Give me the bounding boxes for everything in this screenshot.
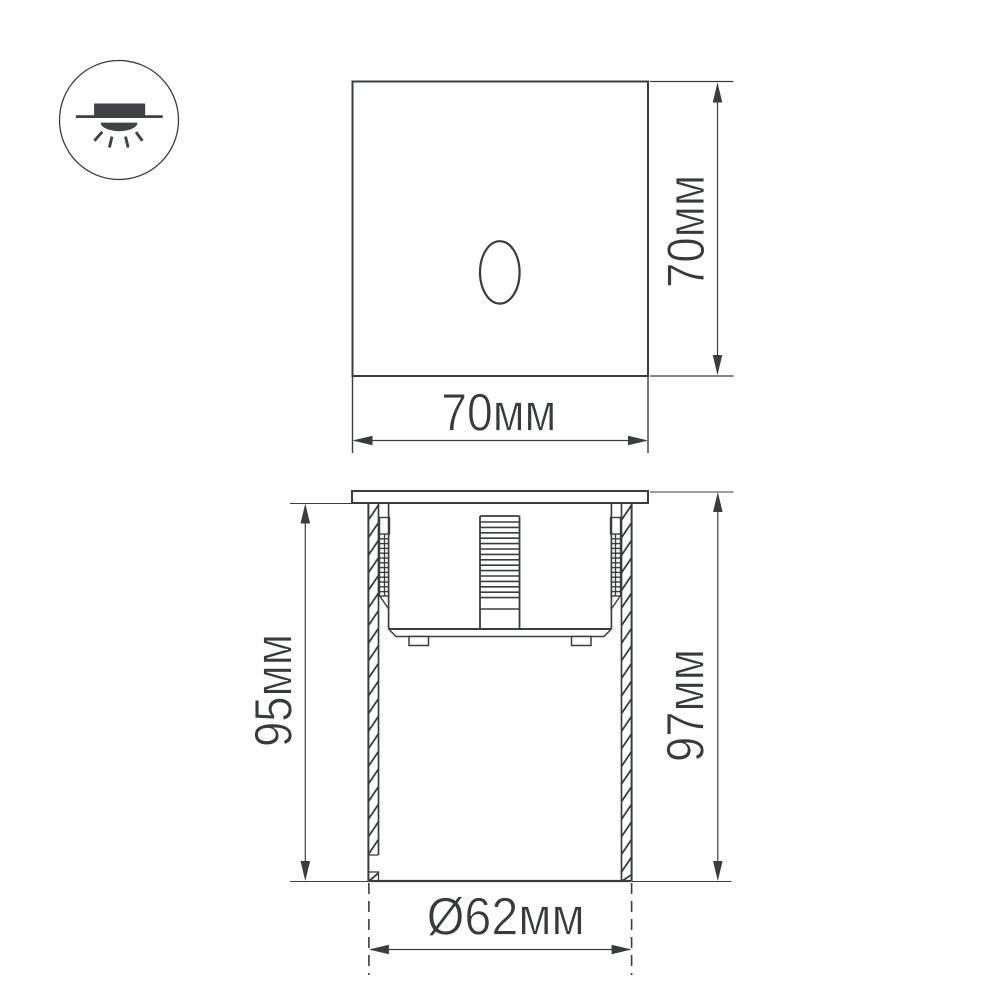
- svg-text:Ø62мм: Ø62мм: [427, 888, 585, 947]
- svg-text:97мм: 97мм: [657, 649, 716, 762]
- svg-text:70мм: 70мм: [657, 175, 716, 288]
- svg-text:70мм: 70мм: [441, 383, 556, 442]
- svg-text:95мм: 95мм: [245, 634, 304, 747]
